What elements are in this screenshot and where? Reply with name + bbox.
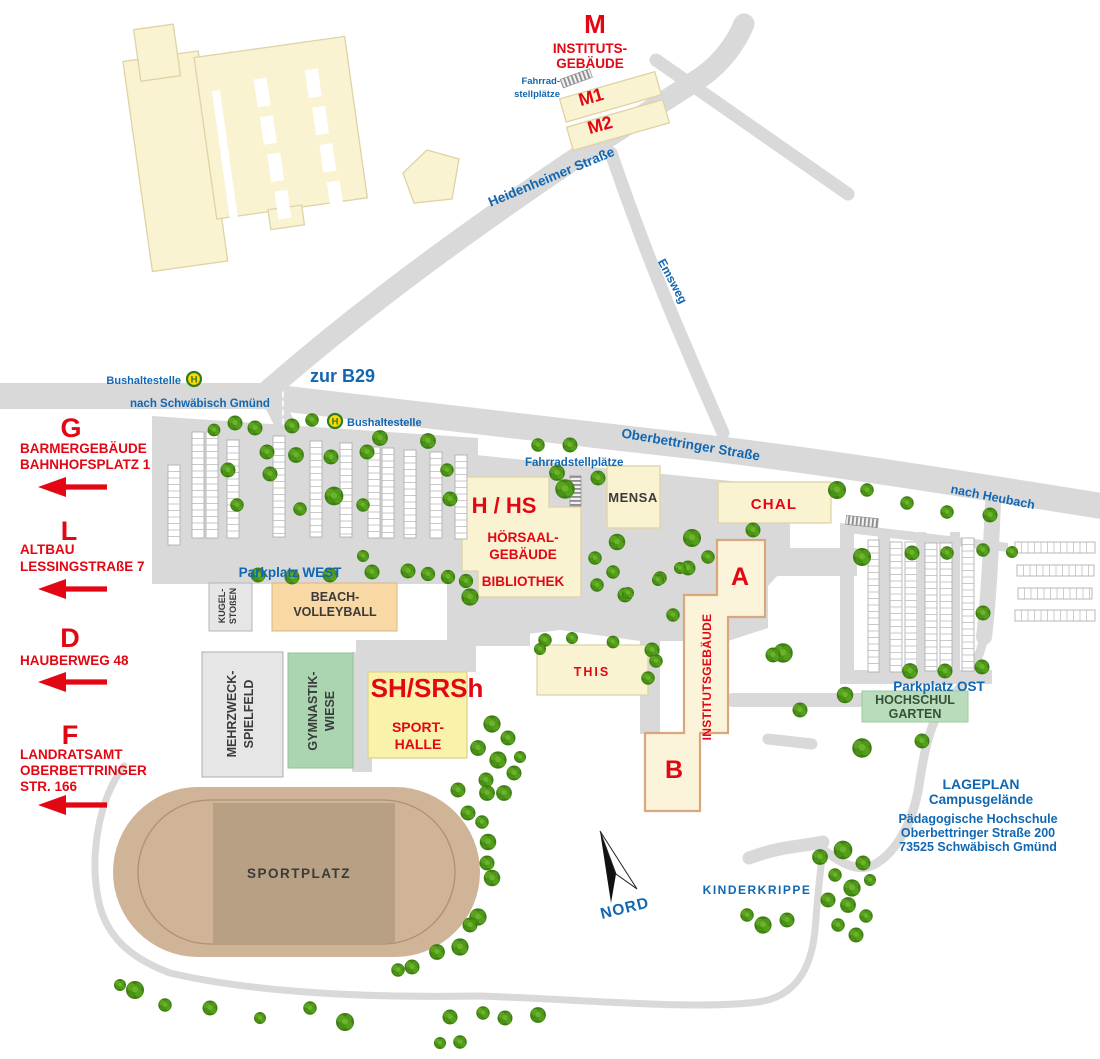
label-bibliothek: BIBLIOTHEK: [482, 574, 565, 589]
label-kugel-1: KUGEL-: [217, 589, 227, 624]
bus-stop-west-icon: H: [187, 372, 201, 386]
label-nach-schwaebisch-gmuend: nach Schwäbisch Gmünd: [130, 398, 270, 410]
label-bike-top-1: Fahrrad-: [521, 76, 560, 87]
label-parkplatz-ost: Parkplatz OST: [893, 679, 985, 694]
arrow-l-icon: [38, 579, 107, 599]
path-b-stub: [768, 739, 812, 744]
compass-north-icon: [600, 831, 637, 903]
arrow-d-icon: [38, 672, 107, 692]
label-institutsgebaeude: INSTITUTSGEBÄUDE: [699, 614, 714, 741]
path-kinderkrippe: [749, 842, 823, 858]
label-beach-2: VOLLEYBALL: [293, 605, 377, 619]
direction-d-line-1: HAUBERWEG 48: [20, 653, 129, 668]
legend-org: Pädagogische Hochschule: [898, 812, 1057, 826]
ost-lane-2: [878, 531, 890, 674]
label-bushaltestelle-west: Bushaltestelle: [106, 375, 181, 387]
building-altbau-complex: [119, 1, 374, 272]
direction-f-line-3: STR. 166: [20, 779, 78, 794]
bus-h-symbol: H: [191, 374, 198, 385]
label-beach-1: BEACH-: [311, 590, 360, 604]
label-kinderkrippe: KINDERKRIPPE: [703, 883, 812, 897]
arrow-f-icon: [38, 795, 107, 815]
label-gymnastik-2: WIESE: [323, 691, 337, 731]
direction-d-letter: D: [60, 623, 80, 653]
label-mehrzweck-1: MEHRZWECK-: [225, 671, 239, 758]
label-mensa: MENSA: [608, 490, 658, 505]
label-m-name-1: INSTITUTS-: [553, 41, 627, 56]
label-heidenheimer-strasse: Heidenheimer Straße: [486, 144, 617, 210]
direction-l-line-1: ALTBAU: [20, 542, 75, 557]
legend-subtitle: Campusgelände: [929, 792, 1034, 807]
direction-f-letter: F: [62, 720, 79, 750]
label-hochschulgarten-1: HOCHSCHUL: [875, 693, 955, 707]
bike-stand-top: [560, 69, 592, 88]
label-sporthalle-1: SPORT-: [392, 719, 444, 735]
label-kugel-2: STOßEN: [228, 588, 238, 624]
legend-title: LAGEPLAN: [943, 776, 1020, 792]
road-crossing-northeast: [656, 60, 848, 194]
label-zur-b29: zur B29: [310, 366, 375, 386]
direction-g-line-2: BAHNHOFSPLATZ 1: [20, 457, 151, 472]
direction-f-line-1: LANDRATSAMT: [20, 747, 123, 762]
arrow-g-icon: [38, 477, 107, 497]
label-mehrzweck-2: SPIELFELD: [242, 680, 256, 749]
label-sportplatz: SPORTPLATZ: [247, 866, 351, 881]
label-gymnastik-1: GYMNASTIK-: [306, 671, 320, 750]
label-this: THIS: [574, 665, 610, 679]
label-block-a: A: [731, 563, 749, 591]
legend-city: 73525 Schwäbisch Gmünd: [899, 840, 1057, 854]
gymnastikwiese-box: [288, 653, 353, 768]
label-m-code: M: [584, 9, 606, 39]
label-sh-code: SH/SRSh: [371, 673, 484, 703]
campus-map: H H M INSTITUTS- GEBÄUDE Fahrrad- stellp…: [0, 0, 1100, 1059]
direction-g-letter: G: [60, 413, 81, 443]
label-bike-top-2: stellplätze: [514, 89, 560, 100]
direction-g-line-1: BARMERGEBÄUDE: [20, 441, 147, 456]
ost-lane-1: [840, 528, 854, 676]
label-nord: NORD: [599, 894, 651, 923]
label-sporthalle-2: HALLE: [395, 736, 442, 752]
direction-l-line-2: LESSINGSTRAßE 7: [20, 559, 145, 574]
direction-f-line-2: OBERBETTRINGER: [20, 763, 147, 778]
label-hhs-name-2: GEBÄUDE: [489, 547, 557, 562]
road-emsweg: [611, 153, 723, 433]
label-hhs-code: H / HS: [472, 493, 537, 518]
label-parkplatz-west: Parkplatz WEST: [239, 565, 343, 580]
label-hochschulgarten-2: GARTEN: [889, 707, 942, 721]
building-pentagon: [403, 150, 459, 203]
label-chal: CHAL: [751, 496, 797, 513]
legend-street: Oberbettringer Straße 200: [901, 826, 1055, 840]
label-hhs-name-1: HÖRSAAL-: [487, 530, 558, 545]
label-block-b: B: [665, 756, 683, 784]
corridor-sporthalle: [356, 640, 476, 672]
label-bushaltestelle-center: Bushaltestelle: [347, 417, 422, 429]
label-m-name-2: GEBÄUDE: [556, 56, 624, 71]
bus-stop-center-icon: H: [328, 414, 342, 428]
bus-h-symbol: H: [332, 416, 339, 427]
label-fahrradstellplaetze: Fahrradstellplätze: [525, 457, 623, 469]
